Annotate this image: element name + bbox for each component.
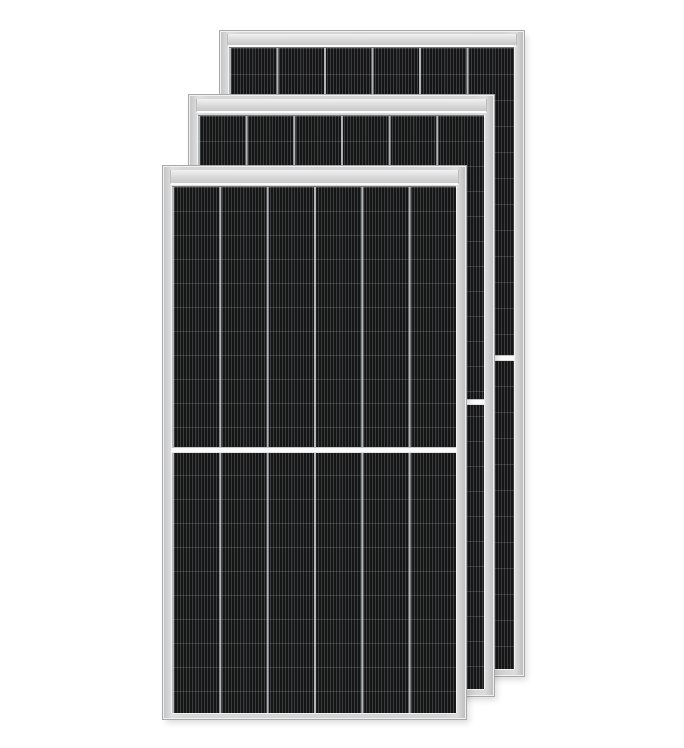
center-divider bbox=[172, 447, 456, 453]
frame-top-band bbox=[196, 99, 487, 113]
solar-panel-front bbox=[163, 166, 466, 719]
frame-top-band bbox=[170, 170, 459, 185]
product-image: Three overlapping black monocrystalline … bbox=[0, 0, 684, 748]
frame-top-band bbox=[227, 34, 517, 47]
